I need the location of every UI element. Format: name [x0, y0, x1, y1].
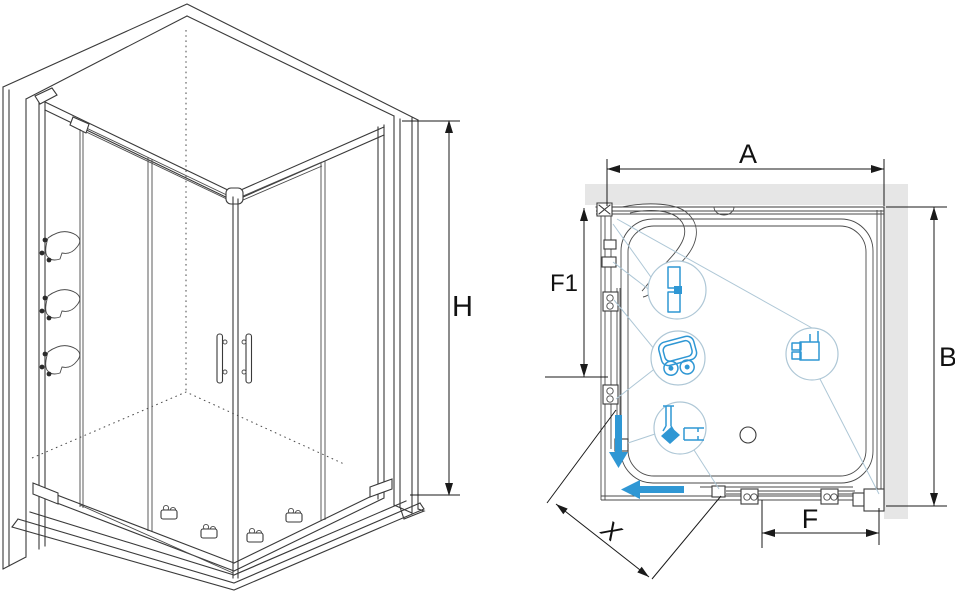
door-handles — [217, 334, 252, 383]
dimension-f-label: F — [802, 504, 819, 534]
dimension-a-label: A — [739, 139, 757, 169]
dimension-h-label: H — [452, 291, 473, 323]
callout-wall-profile — [648, 261, 706, 319]
walls — [3, 4, 424, 569]
callout-roller — [651, 331, 705, 385]
corner-joint-top-left — [597, 203, 612, 216]
roller-bracket — [286, 508, 302, 522]
isometric-view: H — [3, 4, 473, 590]
dimension-b-label: B — [939, 342, 955, 372]
roller-bracket — [161, 505, 177, 519]
hidden-edges — [32, 30, 344, 464]
plan-view: A B F1 F X — [545, 139, 955, 579]
right-wall — [884, 184, 908, 519]
wall-profile-end — [853, 493, 864, 506]
dimension-h: H — [402, 120, 473, 496]
wall-profiles — [35, 88, 384, 549]
top-wall — [585, 184, 908, 205]
top-frame — [45, 102, 384, 204]
wall-bracket — [40, 290, 80, 321]
door-handle — [217, 334, 227, 383]
wall-bracket-plan — [604, 240, 616, 249]
dimension-f1: F1 — [545, 208, 608, 377]
shower-tray — [12, 501, 424, 590]
plan-hardware — [597, 203, 884, 511]
wall-profile-end — [864, 489, 884, 511]
dimension-f: F — [762, 500, 879, 548]
wall-bracket-plan — [602, 257, 616, 267]
callout-seal — [654, 402, 706, 454]
drain — [740, 427, 756, 443]
roller-bracket — [201, 524, 217, 538]
drawing-canvas: H — [0, 0, 955, 591]
roller-plan — [603, 385, 618, 404]
roller-plan — [741, 489, 758, 504]
dimension-x-label: X — [595, 515, 627, 549]
callout-corner-joint — [786, 328, 838, 380]
bottom-frame — [33, 479, 392, 574]
technical-drawing-page: H — [0, 0, 955, 591]
door-handle — [242, 334, 252, 383]
wall-bracket — [40, 346, 80, 377]
roller-plan — [821, 489, 838, 504]
corner-joint-top — [226, 188, 243, 204]
plan-tracks — [596, 207, 884, 505]
wall-bracket — [40, 232, 80, 263]
roller-bracket — [247, 528, 263, 542]
dimension-f1-label: F1 — [550, 270, 578, 297]
